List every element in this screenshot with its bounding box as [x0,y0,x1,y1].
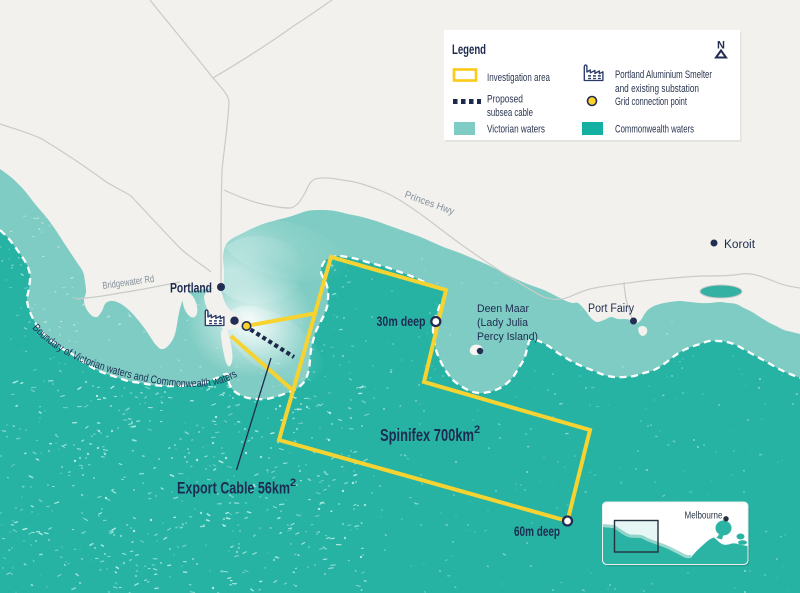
svg-text:Grid connection point: Grid connection point [615,96,687,108]
svg-text:Portland Aluminium Smelter: Portland Aluminium Smelter [615,69,712,81]
svg-text:subsea cable: subsea cable [487,107,533,119]
svg-text:Commonwealth waters: Commonwealth waters [615,124,694,136]
svg-text:Portland: Portland [170,281,212,296]
svg-text:60m deep: 60m deep [514,524,560,539]
svg-text:Port Fairy: Port Fairy [588,303,634,315]
svg-text:and existing substation: and existing substation [615,83,699,95]
svg-text:Legend: Legend [452,41,486,57]
svg-text:2: 2 [474,424,480,436]
svg-text:Proposed: Proposed [487,94,523,106]
svg-text:Spinifex 700km: Spinifex 700km [380,425,474,445]
svg-text:(Lady Julia: (Lady Julia [477,317,529,329]
svg-text:Melbourne: Melbourne [685,511,723,522]
svg-text:Investigation area: Investigation area [487,72,550,84]
svg-text:Deen Maar: Deen Maar [477,303,529,315]
svg-text:Koroit: Koroit [724,239,756,251]
svg-text:30m deep: 30m deep [377,314,426,329]
svg-text:2: 2 [290,477,296,489]
svg-text:Export Cable 56km: Export Cable 56km [177,479,290,498]
svg-text:Victorian waters: Victorian waters [487,124,545,136]
svg-text:Percy Island): Percy Island) [477,331,538,343]
